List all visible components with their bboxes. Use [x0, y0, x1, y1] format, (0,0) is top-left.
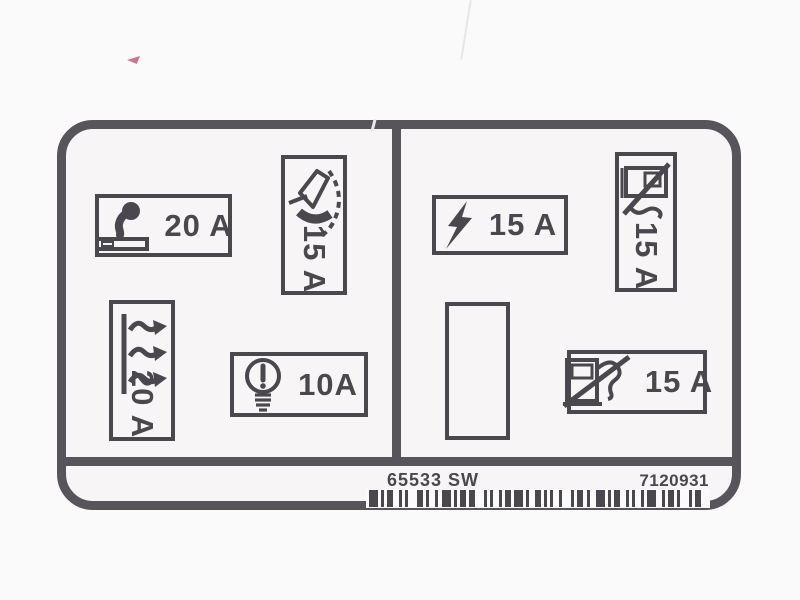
fuel-pump-crossed-icon — [561, 355, 633, 409]
vertical-divider — [392, 129, 401, 466]
fuse-box-windshield-wiper: 15 A — [281, 155, 347, 295]
red-scan-mark — [127, 56, 140, 64]
fuse-box-heated-rear-window: 20 A — [109, 300, 175, 441]
fuse-box-spare-slot — [445, 302, 510, 440]
fuse-box-cigarette-lighter: 20 A — [95, 194, 232, 257]
horizontal-divider — [66, 457, 732, 466]
fuse-box-rear-pump-upper: 15 A — [615, 152, 677, 292]
amperage-label: 15 A — [645, 364, 713, 400]
light-bulb-icon — [240, 357, 286, 413]
fuse-box-light-bulb: 10A — [230, 352, 368, 417]
fuse-box-label: 20 A 15 A — [57, 120, 741, 510]
fuse-box-rear-pump-lower: 15 A — [567, 350, 707, 414]
scan-crease — [460, 0, 471, 60]
border-scratch — [370, 119, 376, 132]
cigarette-lighter-icon — [94, 200, 152, 252]
lightning-bolt-icon — [443, 201, 477, 249]
amperage-label: 15 A — [489, 207, 557, 243]
barcode — [366, 489, 710, 508]
amperage-label: 15 A — [628, 222, 664, 290]
amperage-label: 15 A — [296, 225, 332, 293]
fuse-box-power: 15 A — [432, 195, 568, 255]
amperage-label: 10A — [298, 367, 358, 403]
serial-number: 7120931 — [637, 471, 709, 491]
amperage-label: 20 A — [124, 370, 160, 438]
amperage-label: 20 A — [164, 208, 232, 244]
scanned-fuse-label-page: 20 A 15 A — [0, 0, 800, 600]
fuel-pump-crossed-icon — [620, 162, 672, 224]
part-number: 65533 SW — [387, 470, 479, 491]
